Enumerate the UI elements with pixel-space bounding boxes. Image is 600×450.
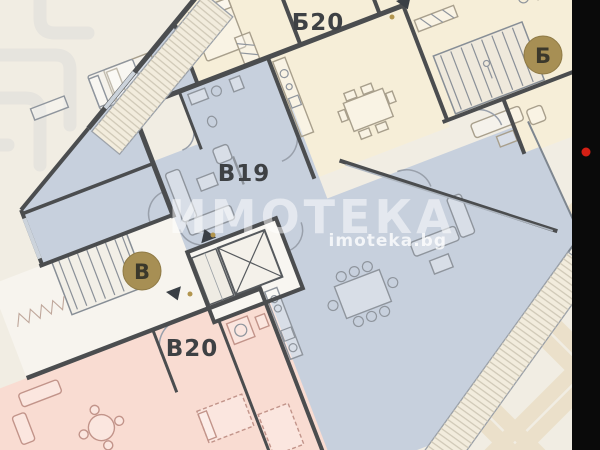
badge-entrance-b[interactable]: Б bbox=[524, 36, 562, 74]
red-marker-dot[interactable] bbox=[582, 148, 591, 157]
label-unit-b20: Б20 bbox=[292, 10, 345, 36]
floorplan-viewer: Б20 В19 В20 Б В ИМОТЕКА imoteka.bg bbox=[0, 0, 600, 450]
entrance-dot-v-bottom bbox=[188, 292, 193, 297]
floorplan-canvas: Б20 В19 В20 Б В ИМОТЕКА imoteka.bg bbox=[0, 0, 600, 450]
label-unit-v19: В19 bbox=[218, 161, 271, 187]
badge-entrance-v[interactable]: В bbox=[123, 252, 161, 290]
badge-entrance-v-letter: В bbox=[134, 260, 150, 284]
right-sidebar bbox=[572, 0, 600, 450]
badge-entrance-b-letter: Б bbox=[535, 44, 551, 68]
watermark-site: imoteka.bg bbox=[329, 231, 447, 251]
entrance-dot-b bbox=[390, 15, 395, 20]
label-unit-v20: В20 bbox=[166, 336, 219, 362]
